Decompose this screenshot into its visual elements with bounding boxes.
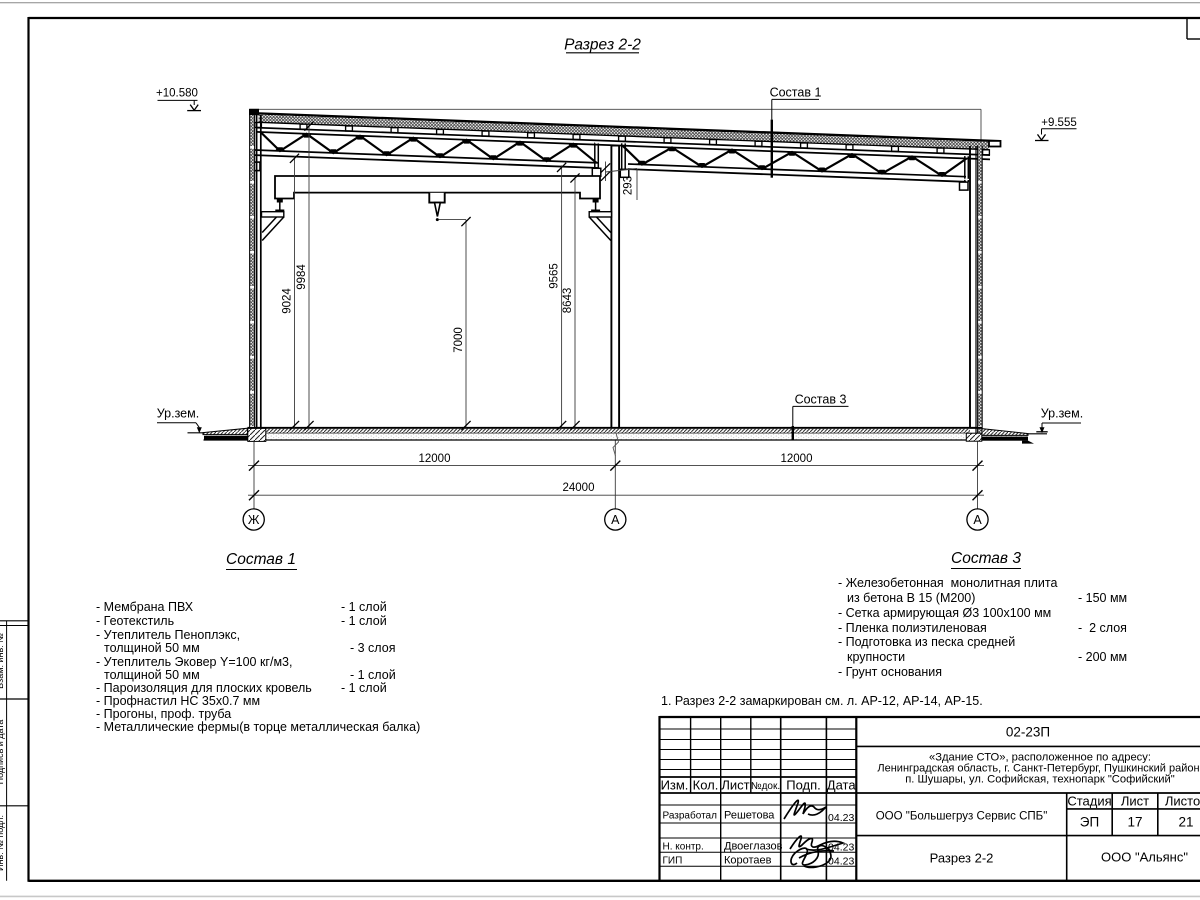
svg-text:Подп.: Подп. xyxy=(786,778,821,793)
svg-text:Подпись и дата: Подпись и дата xyxy=(0,720,5,785)
svg-text:9984: 9984 xyxy=(296,264,308,290)
svg-text:12000: 12000 xyxy=(781,453,813,465)
svg-text:Лист: Лист xyxy=(1121,794,1149,809)
svg-text:п. Шушары, ул. Софийская, техн: п. Шушары, ул. Софийская, технопарк "Соф… xyxy=(905,774,1175,786)
svg-text:+9.555: +9.555 xyxy=(1041,117,1077,129)
svg-text:Инв. № подл.: Инв. № подл. xyxy=(0,815,5,871)
svg-text:04.23: 04.23 xyxy=(828,812,854,824)
svg-text:8643: 8643 xyxy=(562,288,574,314)
svg-text:Лист: Лист xyxy=(721,778,749,793)
svg-text:А: А xyxy=(973,513,982,527)
svg-text:24000: 24000 xyxy=(563,482,595,494)
svg-text:ООО "Альянс": ООО "Альянс" xyxy=(1101,850,1188,865)
svg-text:ЭП: ЭП xyxy=(1080,815,1099,830)
svg-text:Стадия: Стадия xyxy=(1067,794,1111,809)
svg-text:02-23П: 02-23П xyxy=(1006,725,1050,740)
svg-text:А: А xyxy=(611,513,620,527)
svg-text:Листов: Листов xyxy=(1165,794,1200,809)
svg-text:Состав 3: Состав 3 xyxy=(795,393,847,407)
svg-text:293: 293 xyxy=(623,176,635,195)
svg-text:21: 21 xyxy=(1178,815,1193,830)
svg-text:9565: 9565 xyxy=(549,263,561,289)
svg-text:Взам. инв. №: Взам. инв. № xyxy=(0,633,5,689)
svg-text:Решетова: Решетова xyxy=(724,810,775,822)
svg-text:Состав 1: Состав 1 xyxy=(770,85,822,99)
svg-text:Ж: Ж xyxy=(248,513,260,527)
svg-text:Двоеглазов: Двоеглазов xyxy=(724,841,783,853)
svg-text:Разрез 2-2: Разрез 2-2 xyxy=(930,851,994,866)
svg-text:17: 17 xyxy=(1127,815,1142,830)
svg-text:Коротаев: Коротаев xyxy=(724,855,772,867)
svg-text:Дата: Дата xyxy=(827,778,857,793)
svg-text:ООО "Большегруз Сервис СПБ": ООО "Большегруз Сервис СПБ" xyxy=(876,811,1048,823)
svg-text:+10.580: +10.580 xyxy=(156,88,198,100)
svg-text:Ур.зем.: Ур.зем. xyxy=(157,407,199,421)
svg-text:Н. контр.: Н. контр. xyxy=(663,842,704,853)
svg-text:Ур.зем.: Ур.зем. xyxy=(1041,407,1083,421)
svg-text:Разрез 2-2: Разрез 2-2 xyxy=(564,37,641,54)
svg-text:7000: 7000 xyxy=(453,327,465,353)
svg-text:Разработал: Разработал xyxy=(663,810,718,822)
svg-text:12000: 12000 xyxy=(419,453,451,465)
svg-text:№док.: №док. xyxy=(751,781,780,792)
svg-text:ГИП: ГИП xyxy=(663,856,683,867)
svg-text:9024: 9024 xyxy=(282,288,294,314)
svg-text:Кол.: Кол. xyxy=(693,778,719,793)
svg-text:Изм.: Изм. xyxy=(661,778,689,793)
svg-text:04.23: 04.23 xyxy=(828,856,854,868)
